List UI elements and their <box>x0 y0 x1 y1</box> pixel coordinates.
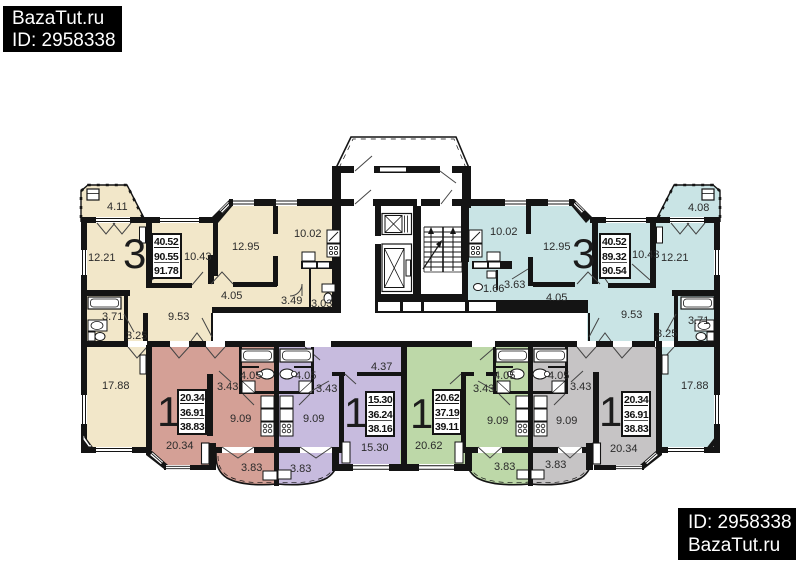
svg-text:3.25: 3.25 <box>656 328 677 340</box>
svg-text:12.21: 12.21 <box>88 252 116 264</box>
svg-text:1: 1 <box>410 390 433 437</box>
svg-text:3.83: 3.83 <box>545 459 566 471</box>
svg-text:20.34: 20.34 <box>624 394 649 406</box>
svg-text:40.52: 40.52 <box>602 236 627 248</box>
svg-text:4.05: 4.05 <box>221 290 242 302</box>
svg-text:1: 1 <box>157 388 180 435</box>
svg-text:20.34: 20.34 <box>166 440 194 452</box>
svg-text:3.03: 3.03 <box>311 298 332 310</box>
svg-text:3: 3 <box>572 230 595 277</box>
svg-text:10.43: 10.43 <box>184 251 212 263</box>
svg-text:12.21: 12.21 <box>661 252 689 264</box>
svg-text:17.88: 17.88 <box>102 380 130 392</box>
svg-text:1: 1 <box>599 388 622 435</box>
svg-text:89.32: 89.32 <box>602 251 627 263</box>
svg-text:37.19: 37.19 <box>435 407 460 419</box>
svg-text:4.05: 4.05 <box>546 292 567 304</box>
svg-text:15.30: 15.30 <box>361 442 389 454</box>
svg-text:4.05: 4.05 <box>494 370 515 382</box>
svg-text:39.11: 39.11 <box>435 421 459 433</box>
svg-text:90.55: 90.55 <box>154 251 179 263</box>
svg-text:38.16: 38.16 <box>368 423 393 435</box>
svg-text:36.91: 36.91 <box>624 409 649 421</box>
svg-text:36.91: 36.91 <box>180 407 205 419</box>
svg-text:9.53: 9.53 <box>168 311 189 323</box>
svg-text:3.43: 3.43 <box>316 383 337 395</box>
svg-text:4.37: 4.37 <box>371 361 392 373</box>
svg-text:17.88: 17.88 <box>681 380 709 392</box>
svg-text:3.71: 3.71 <box>102 311 123 323</box>
svg-text:3.83: 3.83 <box>494 461 515 473</box>
svg-text:3.25: 3.25 <box>126 330 147 342</box>
svg-text:1.66: 1.66 <box>483 283 504 295</box>
svg-text:3.83: 3.83 <box>290 463 311 475</box>
svg-text:4.05: 4.05 <box>295 370 316 382</box>
svg-text:3.83: 3.83 <box>241 462 262 474</box>
svg-text:38.83: 38.83 <box>180 421 205 433</box>
svg-text:9.09: 9.09 <box>230 413 251 425</box>
svg-text:3.63: 3.63 <box>504 279 525 291</box>
svg-text:3.43: 3.43 <box>570 381 591 393</box>
svg-text:91.78: 91.78 <box>154 265 179 277</box>
svg-text:9.09: 9.09 <box>556 415 577 427</box>
svg-text:20.62: 20.62 <box>415 440 443 452</box>
svg-text:1: 1 <box>344 389 367 436</box>
svg-text:9.53: 9.53 <box>621 309 642 321</box>
svg-text:20.34: 20.34 <box>610 443 638 455</box>
svg-text:20.62: 20.62 <box>435 392 460 404</box>
svg-text:12.95: 12.95 <box>543 241 571 253</box>
svg-text:3.43: 3.43 <box>217 381 238 393</box>
svg-text:38.83: 38.83 <box>624 423 649 435</box>
svg-text:4.05: 4.05 <box>240 370 261 382</box>
svg-text:9.09: 9.09 <box>487 415 508 427</box>
svg-text:3.71: 3.71 <box>688 315 709 327</box>
svg-text:4.11: 4.11 <box>107 201 128 213</box>
svg-text:90.54: 90.54 <box>602 265 627 277</box>
svg-text:12.95: 12.95 <box>232 241 260 253</box>
svg-text:10.43: 10.43 <box>632 249 660 261</box>
svg-text:4.08: 4.08 <box>688 202 709 214</box>
svg-text:4.05: 4.05 <box>548 370 569 382</box>
svg-text:3.43: 3.43 <box>473 383 494 395</box>
svg-text:15.30: 15.30 <box>368 394 393 406</box>
svg-text:40.52: 40.52 <box>154 236 179 248</box>
svg-text:10.02: 10.02 <box>294 228 322 240</box>
svg-text:36.24: 36.24 <box>368 409 393 421</box>
svg-text:3.49: 3.49 <box>281 295 302 307</box>
svg-text:10.02: 10.02 <box>490 226 518 238</box>
svg-text:3: 3 <box>123 230 146 277</box>
svg-text:9.09: 9.09 <box>303 413 324 425</box>
svg-text:20.34: 20.34 <box>180 392 205 404</box>
